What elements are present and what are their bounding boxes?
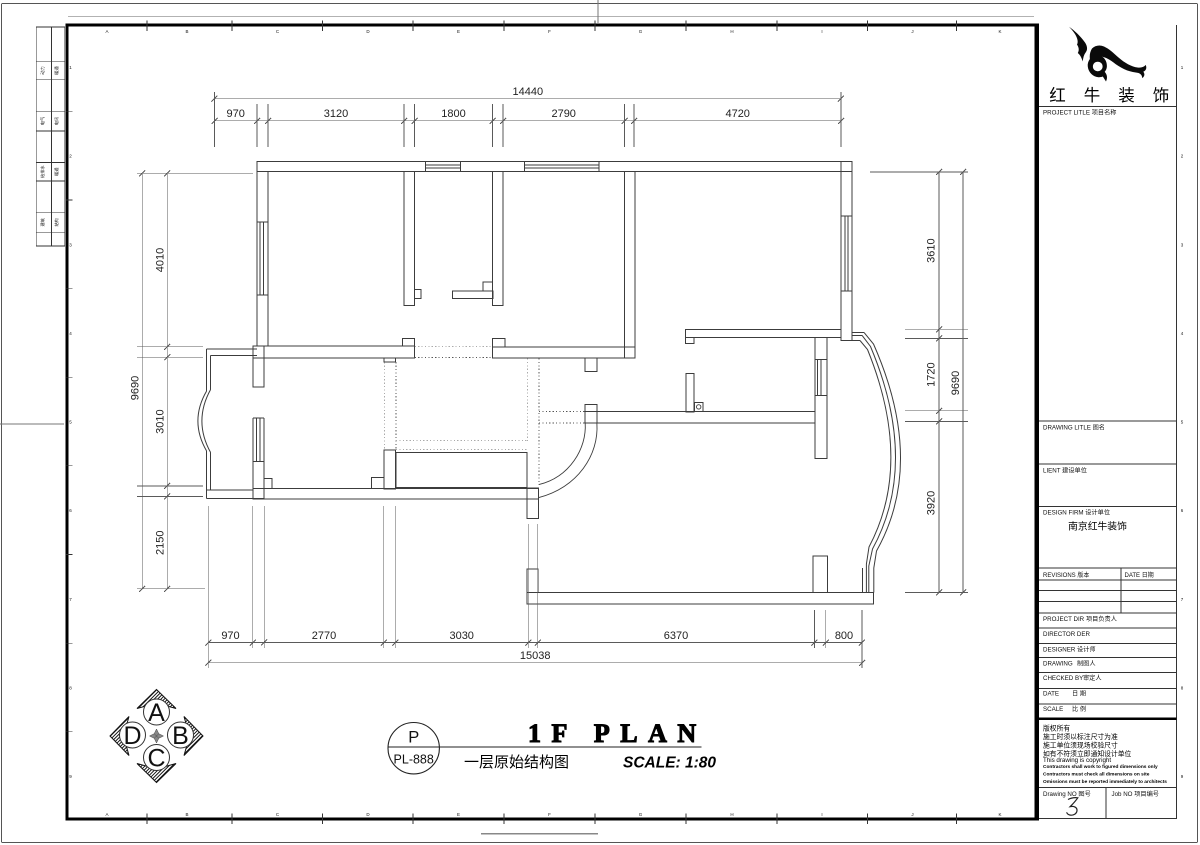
svg-text:施工单位须现场校验尺寸: 施工单位须现场校验尺寸 bbox=[1043, 741, 1118, 750]
svg-text:PROJECT LITLE 项目名称: PROJECT LITLE 项目名称 bbox=[1043, 109, 1116, 117]
svg-text:1800: 1800 bbox=[441, 108, 465, 120]
svg-text:970: 970 bbox=[227, 108, 245, 120]
svg-text:A: A bbox=[105, 812, 108, 817]
svg-text:南京红牛装饰: 南京红牛装饰 bbox=[1068, 520, 1127, 533]
svg-text:牛: 牛 bbox=[1084, 86, 1101, 105]
svg-text:I: I bbox=[821, 812, 822, 817]
svg-text:3030: 3030 bbox=[449, 630, 473, 642]
svg-text:红: 红 bbox=[1049, 86, 1066, 105]
svg-text:施工时须以标注尺寸为准: 施工时须以标注尺寸为准 bbox=[1043, 732, 1118, 741]
svg-text:PL-888: PL-888 bbox=[394, 753, 434, 767]
svg-text:Omissions must be reported imm: Omissions must be reported immediately t… bbox=[1043, 779, 1167, 785]
svg-text:B: B bbox=[185, 812, 188, 817]
svg-text:1F PLAN: 1F PLAN bbox=[528, 719, 707, 748]
svg-text:F: F bbox=[548, 812, 551, 817]
svg-text:3120: 3120 bbox=[324, 108, 348, 120]
svg-text:6370: 6370 bbox=[664, 630, 688, 642]
svg-text:版权所有: 版权所有 bbox=[1043, 724, 1070, 733]
svg-text:动力: 动力 bbox=[39, 66, 46, 74]
svg-text:Contractors must check all dim: Contractors must check all dimensions on… bbox=[1043, 772, 1150, 778]
svg-text:F: F bbox=[548, 29, 551, 34]
svg-text:比 例: 比 例 bbox=[1072, 705, 1086, 713]
svg-text:结构: 结构 bbox=[53, 218, 60, 226]
svg-text:DRAWING LITLE 图名: DRAWING LITLE 图名 bbox=[1043, 424, 1105, 432]
svg-text:PROJECT DIR: PROJECT DIR bbox=[1043, 616, 1085, 623]
svg-text:暖通: 暖通 bbox=[53, 66, 60, 75]
svg-text:设计师: 设计师 bbox=[1077, 646, 1096, 654]
svg-text:SCALE: 1:80: SCALE: 1:80 bbox=[623, 755, 716, 772]
svg-text:G: G bbox=[639, 29, 643, 34]
svg-text:A: A bbox=[148, 699, 165, 727]
svg-text:K: K bbox=[998, 812, 1001, 817]
svg-text:3610: 3610 bbox=[926, 238, 938, 262]
svg-text:Drawing NO 图号: Drawing NO 图号 bbox=[1043, 791, 1091, 798]
svg-text:CHECKED BY: CHECKED BY bbox=[1043, 675, 1083, 682]
svg-text:9690: 9690 bbox=[950, 371, 962, 395]
svg-text:3920: 3920 bbox=[926, 491, 938, 515]
svg-text:J: J bbox=[911, 812, 913, 817]
svg-text:DRAWING: DRAWING bbox=[1043, 661, 1073, 668]
svg-text:电气: 电气 bbox=[39, 116, 45, 125]
svg-text:4720: 4720 bbox=[725, 108, 749, 120]
svg-text:LIENT 建设单位: LIENT 建设单位 bbox=[1043, 467, 1087, 475]
svg-text:建筑: 建筑 bbox=[39, 217, 46, 226]
svg-text:电讯: 电讯 bbox=[53, 116, 60, 125]
svg-text:SCALE: SCALE bbox=[1043, 706, 1063, 713]
svg-text:DATE: DATE bbox=[1043, 691, 1059, 698]
svg-text:H: H bbox=[730, 812, 733, 817]
svg-text:DESIGNER: DESIGNER bbox=[1043, 647, 1076, 654]
svg-text:14440: 14440 bbox=[513, 86, 544, 98]
svg-text:E: E bbox=[457, 29, 460, 34]
svg-text:2790: 2790 bbox=[551, 108, 575, 120]
svg-text:C: C bbox=[147, 745, 165, 773]
svg-text:P: P bbox=[408, 729, 419, 747]
svg-text:DESIGN FIRM 设计单位: DESIGN FIRM 设计单位 bbox=[1043, 509, 1110, 517]
svg-text:日 期: 日 期 bbox=[1072, 690, 1086, 698]
svg-text:K: K bbox=[998, 29, 1001, 34]
svg-text:B: B bbox=[185, 29, 188, 34]
svg-text:审定人: 审定人 bbox=[1083, 674, 1102, 682]
svg-text:E: E bbox=[457, 812, 460, 817]
svg-text:2150: 2150 bbox=[155, 530, 167, 554]
svg-text:4010: 4010 bbox=[155, 248, 167, 272]
svg-text:1720: 1720 bbox=[926, 362, 938, 386]
svg-text:B: B bbox=[172, 722, 189, 750]
svg-text:3010: 3010 bbox=[155, 409, 167, 433]
svg-text:Job NO 项目编号: Job NO 项目编号 bbox=[1112, 790, 1159, 798]
svg-text:一层原始结构图: 一层原始结构图 bbox=[464, 754, 569, 771]
svg-text:制图人: 制图人 bbox=[1077, 660, 1096, 668]
svg-text:9690: 9690 bbox=[130, 376, 142, 400]
svg-text:J: J bbox=[911, 29, 913, 34]
svg-text:Contractors shall work to figu: Contractors shall work to figured dimens… bbox=[1043, 764, 1158, 770]
svg-text:项目负责人: 项目负责人 bbox=[1086, 615, 1117, 623]
svg-text:970: 970 bbox=[221, 630, 239, 642]
svg-text:DIRECTOR DER: DIRECTOR DER bbox=[1043, 631, 1091, 638]
svg-text:给排水: 给排水 bbox=[39, 165, 46, 178]
svg-text:饰: 饰 bbox=[1153, 86, 1170, 105]
svg-text:REVISIONS 版本: REVISIONS 版本 bbox=[1043, 571, 1089, 579]
svg-text:800: 800 bbox=[835, 630, 853, 642]
svg-text:D: D bbox=[123, 722, 141, 750]
svg-text:I: I bbox=[821, 29, 822, 34]
svg-text:This drawing is copyright: This drawing is copyright bbox=[1043, 757, 1111, 764]
svg-text:装: 装 bbox=[1118, 86, 1135, 105]
svg-text:15038: 15038 bbox=[520, 650, 551, 662]
svg-text:H: H bbox=[730, 29, 733, 34]
svg-text:暖通: 暖通 bbox=[53, 167, 60, 176]
svg-text:DATE 日期: DATE 日期 bbox=[1125, 571, 1154, 579]
svg-text:2770: 2770 bbox=[312, 630, 336, 642]
svg-text:G: G bbox=[639, 812, 643, 817]
svg-text:A: A bbox=[105, 29, 108, 34]
